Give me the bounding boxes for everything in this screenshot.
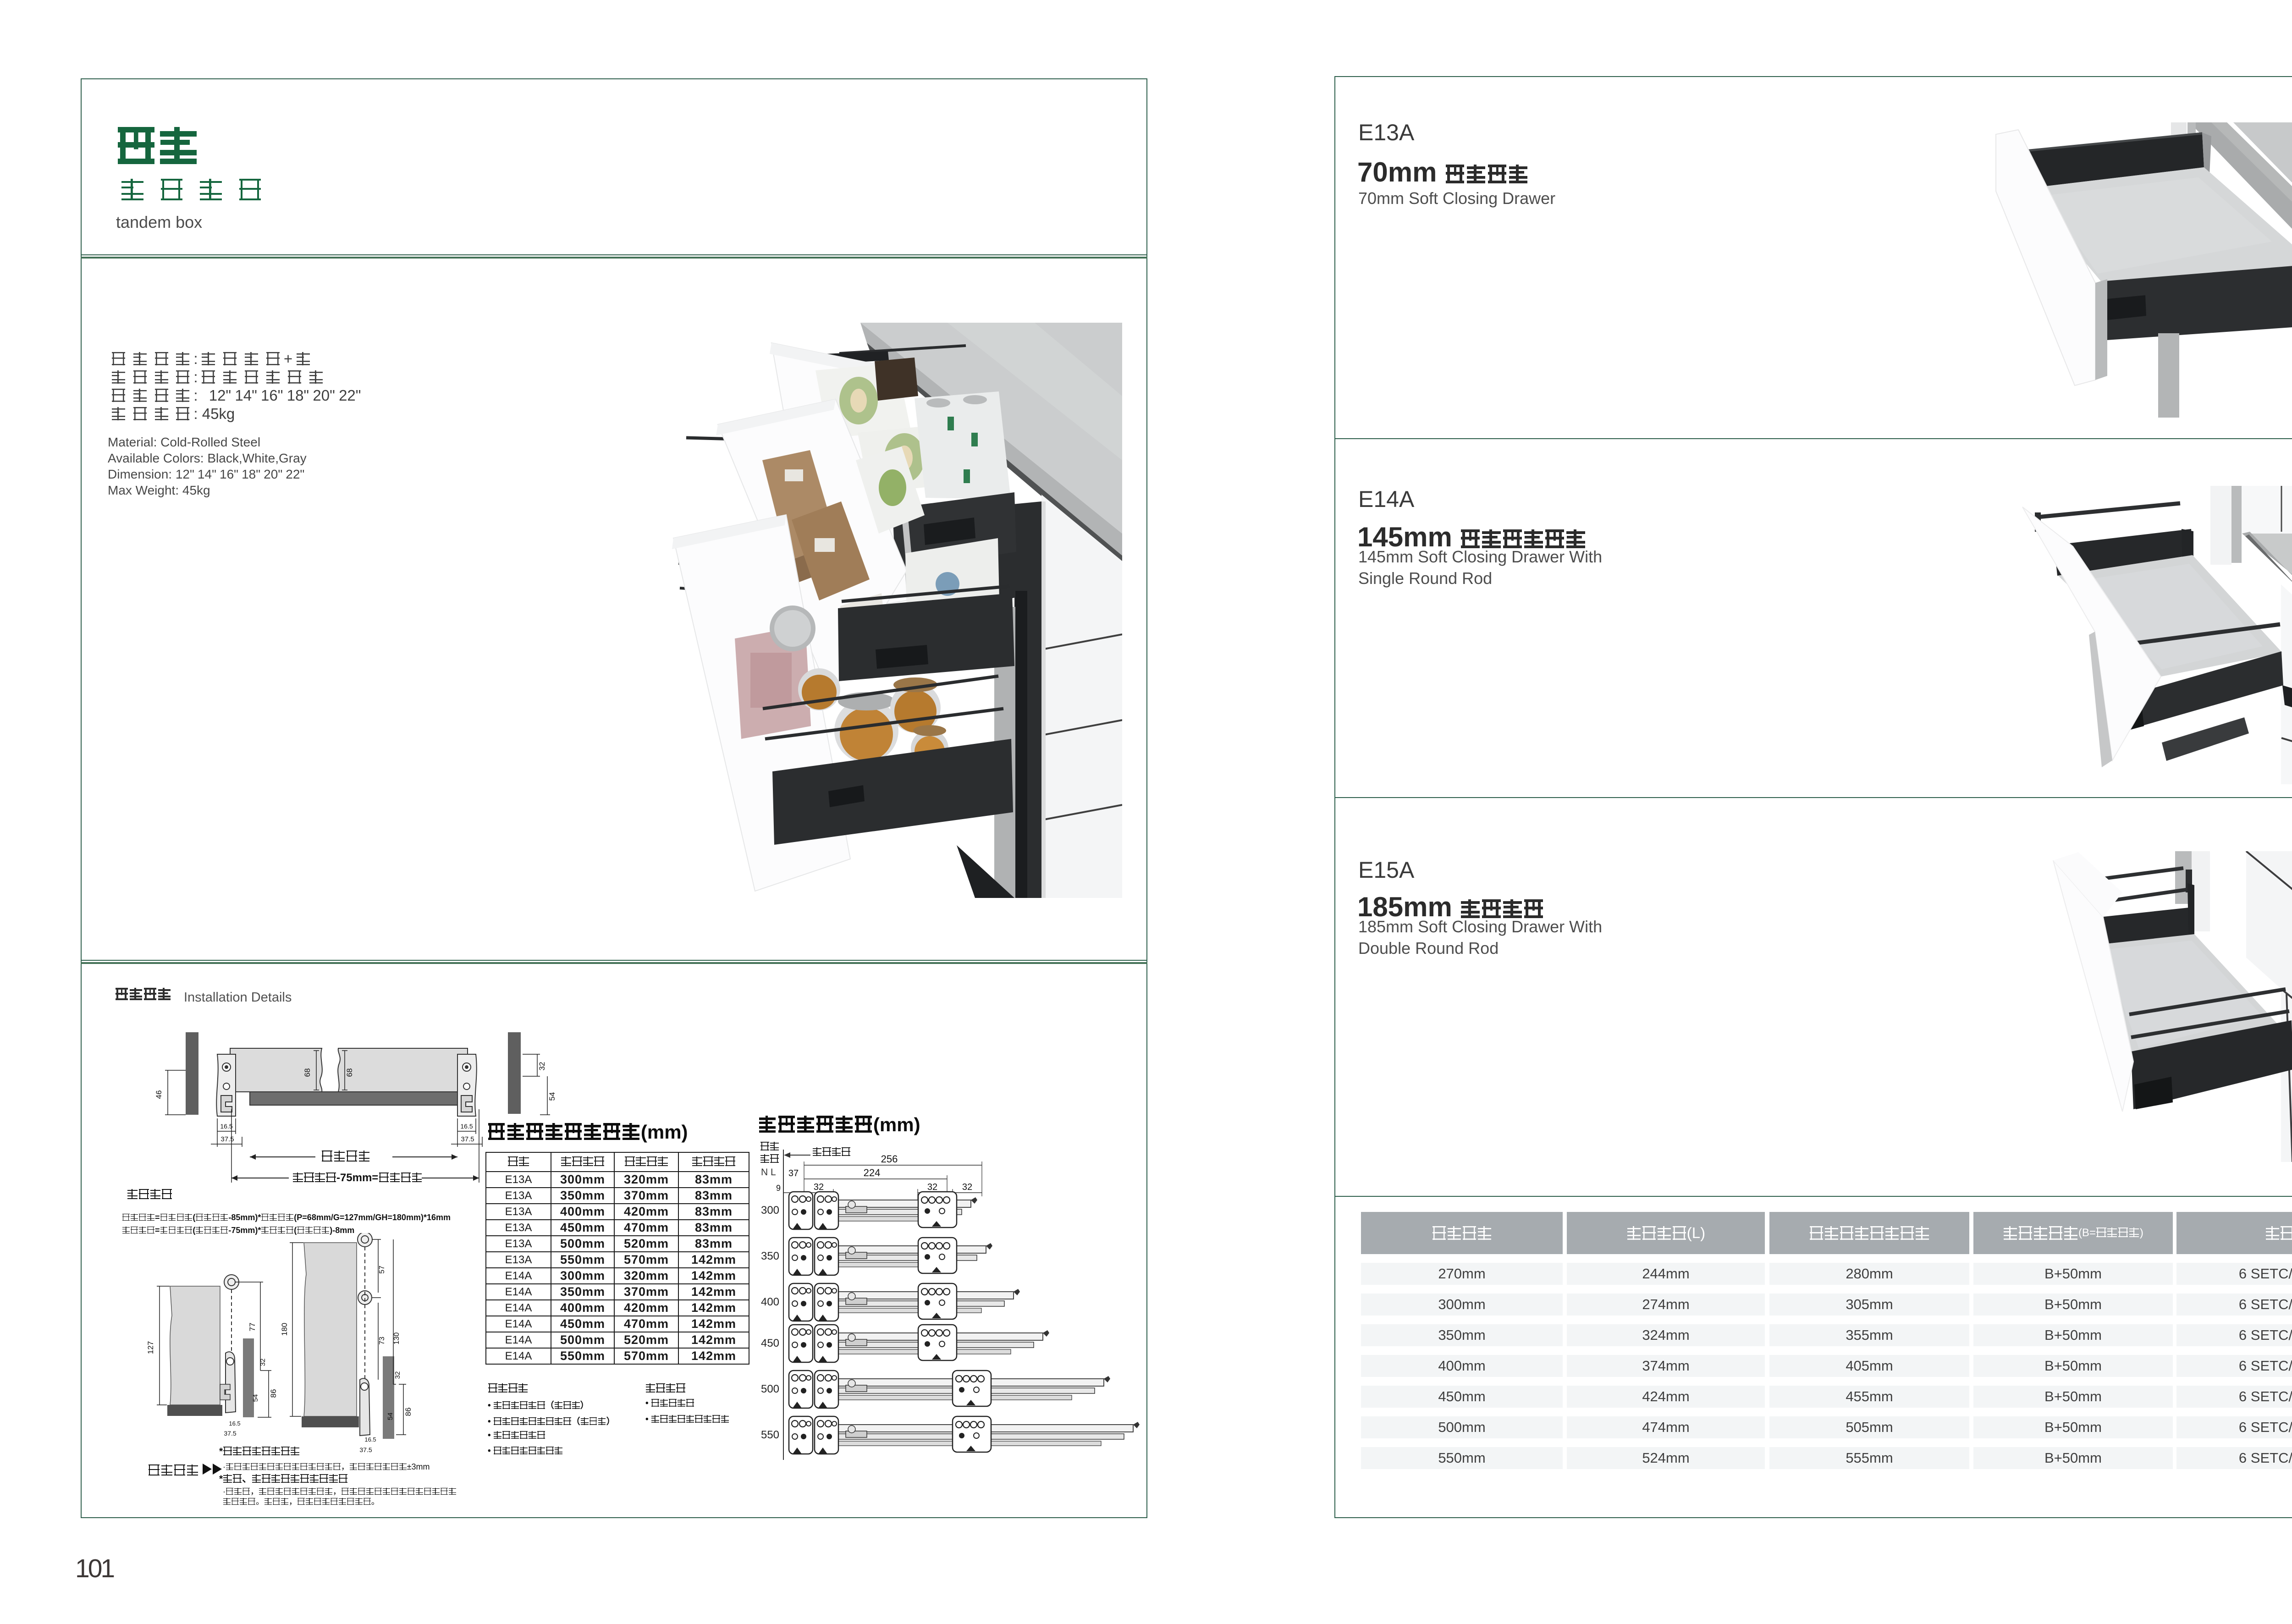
svg-text:256: 256 — [881, 1153, 898, 1165]
svg-text:73: 73 — [378, 1337, 386, 1345]
svg-text:550: 550 — [761, 1429, 779, 1441]
svg-text:68: 68 — [303, 1068, 312, 1077]
svg-text:37.5: 37.5 — [359, 1446, 372, 1453]
svg-text:300: 300 — [761, 1204, 779, 1217]
svg-text:400: 400 — [761, 1296, 779, 1308]
svg-text:37.5: 37.5 — [461, 1135, 474, 1143]
svg-text:77: 77 — [248, 1323, 257, 1332]
svg-text:500: 500 — [761, 1383, 779, 1395]
svg-text:46: 46 — [154, 1090, 163, 1099]
svg-text:16.5: 16.5 — [229, 1420, 240, 1427]
svg-text:57: 57 — [378, 1266, 386, 1274]
svg-text:450: 450 — [761, 1337, 779, 1349]
svg-text:86: 86 — [404, 1408, 413, 1416]
svg-text:54: 54 — [548, 1092, 556, 1101]
svg-text:224: 224 — [864, 1167, 881, 1178]
svg-text:54: 54 — [386, 1413, 394, 1420]
svg-text:32: 32 — [259, 1359, 267, 1366]
svg-text:37.5: 37.5 — [220, 1135, 234, 1143]
svg-text:16.5: 16.5 — [460, 1123, 473, 1130]
svg-text:37: 37 — [788, 1168, 799, 1178]
svg-text:130: 130 — [393, 1332, 401, 1345]
svg-text:32: 32 — [814, 1182, 824, 1192]
svg-text:32: 32 — [927, 1182, 937, 1192]
svg-text:9: 9 — [776, 1184, 781, 1193]
svg-text:68: 68 — [345, 1068, 354, 1077]
svg-text:54: 54 — [252, 1394, 259, 1402]
svg-text:37.5: 37.5 — [224, 1430, 236, 1437]
svg-text:16.5: 16.5 — [364, 1436, 376, 1443]
svg-text:32: 32 — [962, 1182, 972, 1192]
svg-text:350: 350 — [761, 1250, 779, 1262]
svg-text:16.5: 16.5 — [220, 1123, 232, 1130]
svg-text:180: 180 — [280, 1323, 289, 1336]
svg-text:127: 127 — [146, 1341, 155, 1354]
svg-text:86: 86 — [269, 1389, 278, 1398]
svg-text:32: 32 — [538, 1062, 546, 1071]
svg-text:32: 32 — [394, 1371, 402, 1379]
